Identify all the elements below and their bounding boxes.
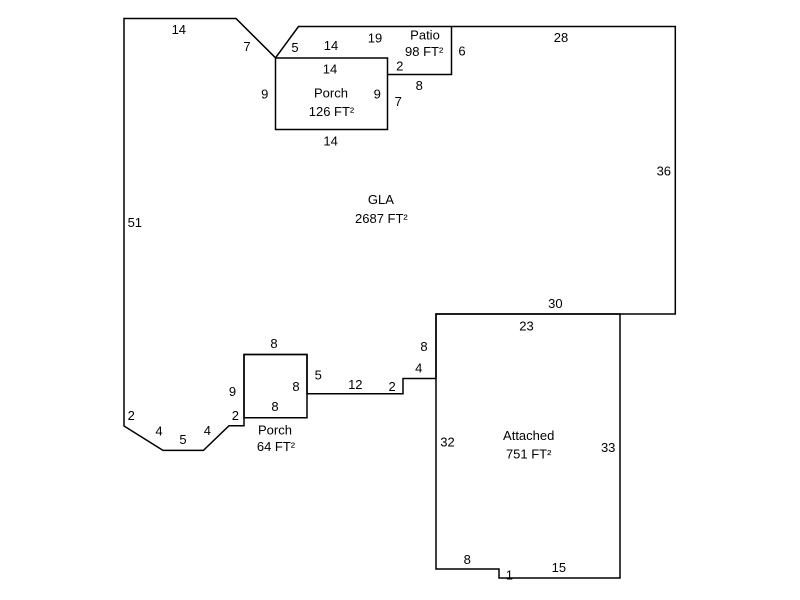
svg-text:6: 6 <box>458 43 465 58</box>
svg-text:64 FT²: 64 FT² <box>257 439 296 454</box>
svg-text:98 FT²: 98 FT² <box>405 44 444 59</box>
svg-text:2687 FT²: 2687 FT² <box>355 211 408 226</box>
svg-text:14: 14 <box>323 62 337 77</box>
svg-text:Porch: Porch <box>258 423 292 438</box>
svg-text:Porch: Porch <box>314 85 348 100</box>
svg-text:14: 14 <box>323 134 337 149</box>
svg-text:Patio: Patio <box>410 27 440 42</box>
svg-text:36: 36 <box>657 164 671 179</box>
svg-text:9: 9 <box>374 87 381 102</box>
svg-text:2: 2 <box>232 408 239 423</box>
svg-text:14: 14 <box>324 38 338 53</box>
svg-text:7: 7 <box>395 94 402 109</box>
svg-text:32: 32 <box>440 435 454 450</box>
svg-text:33: 33 <box>601 440 615 455</box>
svg-text:GLA: GLA <box>368 192 394 207</box>
svg-text:14: 14 <box>172 22 186 37</box>
svg-text:1: 1 <box>506 567 513 582</box>
svg-text:8: 8 <box>416 78 423 93</box>
svg-text:15: 15 <box>552 560 566 575</box>
svg-text:8: 8 <box>271 399 278 414</box>
svg-text:19: 19 <box>368 30 382 45</box>
svg-text:12: 12 <box>348 377 362 392</box>
svg-text:2: 2 <box>396 58 403 73</box>
svg-text:751 FT²: 751 FT² <box>506 447 552 462</box>
svg-text:8: 8 <box>292 379 299 394</box>
svg-text:30: 30 <box>548 296 562 311</box>
svg-text:9: 9 <box>261 86 268 101</box>
svg-text:4: 4 <box>204 423 211 438</box>
svg-text:8: 8 <box>464 552 471 567</box>
svg-text:5: 5 <box>291 40 298 55</box>
svg-text:23: 23 <box>519 318 533 333</box>
svg-text:7: 7 <box>243 39 250 54</box>
svg-text:5: 5 <box>179 432 186 447</box>
svg-text:Attached: Attached <box>503 428 554 443</box>
svg-text:28: 28 <box>554 30 568 45</box>
svg-text:5: 5 <box>315 368 322 383</box>
svg-text:126 FT²: 126 FT² <box>309 104 355 119</box>
svg-text:8: 8 <box>270 336 277 351</box>
svg-text:4: 4 <box>155 424 162 439</box>
svg-text:2: 2 <box>128 408 135 423</box>
svg-text:4: 4 <box>415 360 422 375</box>
svg-text:2: 2 <box>388 379 395 394</box>
svg-text:51: 51 <box>128 215 142 230</box>
svg-text:8: 8 <box>420 339 427 354</box>
svg-text:9: 9 <box>229 384 236 399</box>
